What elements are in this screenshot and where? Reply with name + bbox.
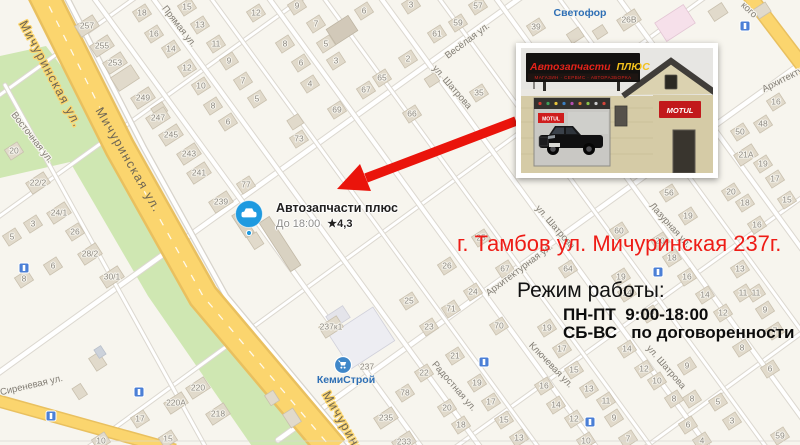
svg-text:Автозапчасти ПЛЮС: Автозапчасти ПЛЮС	[529, 61, 650, 73]
house-number: 25	[404, 296, 414, 306]
house-number: 17	[486, 397, 496, 407]
transit-stop-icon[interactable]	[585, 417, 595, 427]
house-number: 247	[151, 113, 165, 123]
house-number: 16	[752, 220, 762, 230]
house-number: 8	[22, 274, 27, 284]
poster-logos	[538, 102, 605, 105]
house-number: 26	[442, 261, 452, 271]
marker-subtitle: До 18:00★4,3	[276, 217, 352, 230]
house-number: 59	[775, 431, 785, 441]
transit-stop-icon[interactable]	[740, 21, 750, 31]
house-number: 9	[295, 1, 300, 11]
car-poster: MOTUL	[534, 98, 610, 166]
house-number: 16	[539, 381, 549, 391]
house-number: 15	[499, 415, 509, 425]
house-number: 8	[690, 394, 695, 404]
house-number: 12	[639, 364, 649, 374]
house-number: 8	[283, 39, 288, 49]
house-number: 220	[191, 383, 205, 393]
house-number: 235	[379, 413, 393, 423]
house-number: 19	[472, 378, 482, 388]
house-number: 8	[672, 394, 677, 404]
house-number: 56	[664, 188, 674, 198]
sign-title: Автозапчасти	[529, 61, 611, 73]
house-number: 24	[468, 287, 478, 297]
house-number: 69	[332, 105, 342, 115]
house-number: 3	[31, 219, 36, 229]
house-number: 11	[739, 288, 748, 298]
poi-label[interactable]: Светофор	[554, 7, 607, 19]
house-number: 73	[294, 134, 304, 144]
house-number: 255	[95, 41, 109, 51]
house-number: 50	[735, 127, 745, 137]
house-number: 23	[424, 322, 434, 332]
house-number: 6	[51, 261, 56, 271]
house-number: 239	[214, 197, 228, 207]
sign-title-accent: ПЛЮС	[616, 61, 650, 73]
gable-window	[665, 75, 677, 89]
house-number: 4	[308, 79, 313, 89]
poi-светофор[interactable]: Светофор	[554, 7, 607, 19]
house-number: 24/1	[51, 208, 68, 218]
house-number: 16	[682, 272, 692, 282]
schedule-weekend: СБ-ВС по договоренности	[563, 323, 794, 343]
house-number: 48	[758, 119, 768, 129]
house-number: 7	[241, 76, 246, 86]
bottom-divider	[0, 441, 800, 442]
house-number: 5	[10, 232, 15, 242]
house-number: 14	[551, 400, 561, 410]
house-number: 11	[212, 39, 221, 49]
motul-banner-right: MOTUL	[659, 101, 701, 118]
poi-label[interactable]: КемиСтрой	[317, 374, 375, 386]
house-number: 16	[149, 29, 159, 39]
house-number: 6	[768, 364, 773, 374]
house-number: 13	[584, 384, 594, 394]
house-number: 59	[453, 18, 463, 28]
house-number: 19	[542, 323, 552, 333]
house-number: 13	[195, 20, 205, 30]
house-number: 11	[602, 396, 611, 406]
house-number: 241	[192, 168, 206, 178]
house-number: 10	[96, 436, 106, 445]
house-number: 7	[626, 434, 631, 444]
motul-text-left: MOTUL	[542, 117, 560, 123]
house-number: 18	[137, 8, 147, 18]
house-number: 78	[400, 388, 410, 398]
house-number: 2	[406, 54, 411, 64]
house-number: 14	[700, 290, 710, 300]
house-number: 243	[182, 149, 196, 159]
house-number: 5	[716, 397, 721, 407]
house-number: 3	[334, 56, 339, 66]
house-number: 10	[652, 376, 662, 386]
house-number: 15	[782, 195, 792, 205]
house-number: 18	[456, 420, 466, 430]
schedule-weekdays: ПН-ПТ 9:00-18:00	[563, 305, 708, 325]
transit-stop-icon[interactable]	[479, 357, 489, 367]
house-number: 39	[531, 22, 541, 32]
house-number: 237к1	[320, 322, 343, 332]
house-number: 22	[419, 368, 429, 378]
house-number: 15	[182, 2, 192, 12]
house-number: 14	[166, 44, 176, 54]
marker-rating: 4,3	[337, 218, 352, 230]
house-number: 4	[700, 436, 705, 445]
house-number: 26В	[621, 15, 636, 25]
house-number: 17	[557, 344, 567, 354]
door	[673, 130, 695, 173]
transit-stop-icon[interactable]	[134, 387, 144, 397]
house-number: 7	[314, 19, 319, 29]
house-number: 21А	[738, 150, 753, 160]
house-number: 218	[211, 409, 225, 419]
marker-anchor-dot	[246, 230, 251, 235]
house-number: 77	[241, 180, 251, 190]
house-number: 8	[740, 343, 745, 353]
marker-hours: До 18:00	[276, 218, 320, 230]
house-number: 9	[685, 361, 690, 371]
house-number: 6	[362, 6, 367, 16]
house-number: 9	[763, 305, 768, 315]
house-number: 35	[474, 88, 484, 98]
wall-window	[615, 106, 627, 126]
house-number: 8	[211, 101, 216, 111]
transit-stop-icon[interactable]	[653, 267, 663, 277]
house-number: 237	[360, 362, 374, 372]
house-number: 65	[377, 73, 387, 83]
house-number: 30/1	[104, 272, 121, 282]
house-number: 71	[446, 304, 456, 314]
house-number: 10	[196, 81, 206, 91]
house-number: 6	[686, 420, 691, 430]
house-number: 5	[324, 39, 329, 49]
house-number: 15	[569, 365, 579, 375]
house-number: 9	[612, 413, 617, 423]
transit-stop-icon[interactable]	[46, 411, 56, 421]
schedule-title: Режим работы:	[517, 279, 665, 303]
map[interactable]: 1816141210861513119751225725525324924724…	[0, 0, 800, 445]
house-number: 3	[409, 0, 414, 10]
house-number: 249	[136, 93, 150, 103]
marker-title[interactable]: Автозапчасти плюс	[276, 201, 398, 215]
house-number: 6	[226, 117, 231, 127]
house-number: 19	[683, 211, 693, 221]
house-number: 57	[473, 1, 483, 11]
house-number: 17	[770, 174, 780, 184]
house-number: 12	[569, 414, 579, 424]
house-number: 70	[494, 321, 504, 331]
house-number: 11	[752, 288, 761, 298]
house-number: 9	[227, 56, 232, 66]
house-number: 220А	[166, 398, 186, 408]
house-number: 5	[255, 94, 260, 104]
house-number: 12	[251, 8, 261, 18]
house-number: 253	[108, 58, 122, 68]
house-number: 67	[361, 85, 371, 95]
house-number: 12	[718, 308, 728, 318]
house-number: 19	[758, 159, 768, 169]
house-number: 257	[80, 21, 94, 31]
house-number: 14	[622, 344, 632, 354]
house-number: 20	[9, 146, 19, 156]
house-number: 16	[771, 97, 781, 107]
house-number: 22/2	[30, 178, 47, 188]
house-number: 20	[726, 187, 736, 197]
house-number: 26	[70, 227, 80, 237]
house-number: 28/2	[82, 249, 99, 259]
house-number: 10	[581, 436, 591, 445]
house-number: 3	[730, 416, 735, 426]
house-number: 61	[432, 29, 442, 39]
house-number: 13	[735, 264, 745, 274]
house-number: 245	[164, 130, 178, 140]
star-icon: ★	[327, 218, 337, 230]
house-number: 66	[407, 109, 417, 119]
house-number: 18	[740, 198, 750, 208]
address-text: г. Тамбов ул. Мичуринская 237г.	[457, 231, 781, 257]
house-number: 6	[299, 58, 304, 68]
transit-stop-icon[interactable]	[19, 263, 29, 273]
house-number: 17	[135, 414, 145, 424]
house-number: 64	[563, 264, 573, 274]
house-number: 12	[182, 63, 192, 73]
sign-subtitle: МАГАЗИН · СЕРВИС · АВТОРАЗБОРКА	[534, 75, 632, 80]
house-number: 20	[442, 403, 452, 413]
house-number: 15	[163, 434, 173, 444]
motul-text-right: MOTUL	[667, 106, 694, 115]
house-number: 21	[450, 351, 460, 361]
store-photo: Автозапчасти ПЛЮС МАГАЗИН · СЕРВИС · АВТ…	[516, 43, 718, 178]
